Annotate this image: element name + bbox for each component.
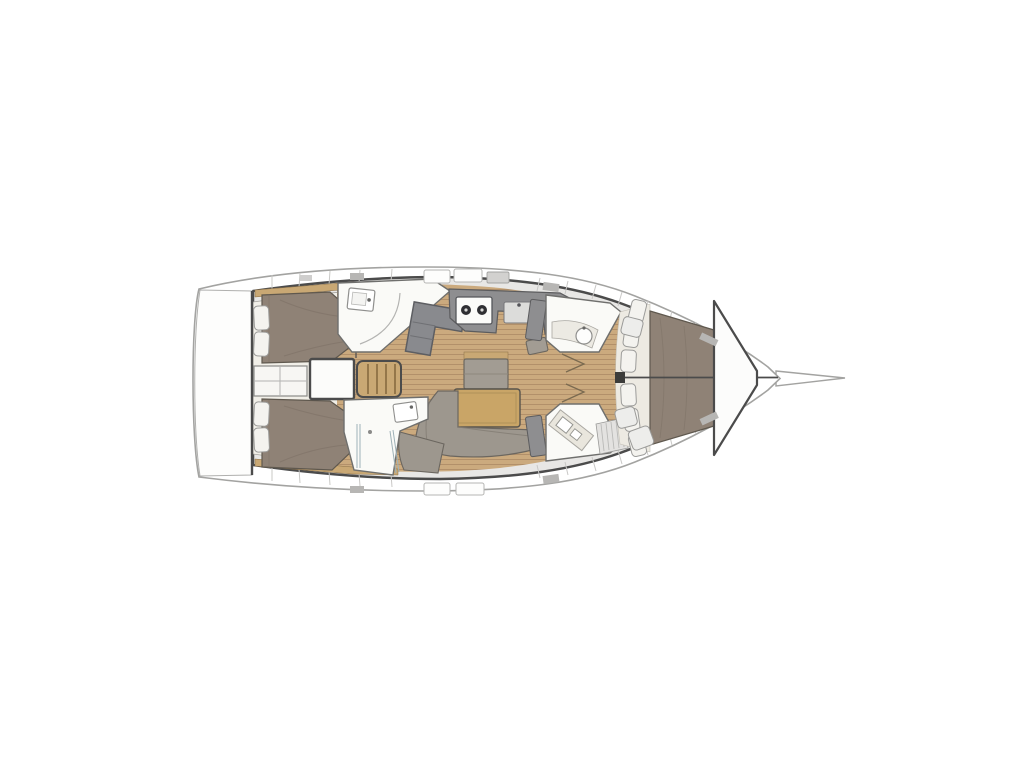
hatch bbox=[487, 272, 509, 283]
hatch bbox=[454, 269, 482, 282]
locker bbox=[614, 406, 638, 429]
hatch bbox=[424, 270, 450, 283]
pillow bbox=[253, 332, 269, 357]
center-shelves bbox=[254, 366, 307, 396]
pillow bbox=[620, 350, 636, 373]
double-bed bbox=[262, 399, 354, 470]
yacht-floorplan-page bbox=[0, 0, 1024, 768]
pillow bbox=[253, 402, 269, 427]
hatch bbox=[456, 483, 484, 495]
hatch bbox=[424, 483, 450, 495]
yacht-floorplan bbox=[0, 0, 1024, 768]
pillow bbox=[253, 306, 269, 331]
sink bbox=[393, 401, 418, 422]
hatch bbox=[300, 275, 312, 281]
companionway-steps bbox=[357, 361, 401, 397]
pillow bbox=[620, 384, 636, 407]
transom-swim-platform bbox=[195, 290, 252, 476]
sink bbox=[347, 288, 375, 312]
engine-compartment bbox=[310, 359, 354, 399]
hatch bbox=[350, 273, 364, 280]
anchor-locker bbox=[714, 301, 757, 455]
salon-center-seat bbox=[464, 352, 508, 389]
mast-post bbox=[615, 372, 625, 383]
hatch bbox=[350, 486, 364, 493]
salon-table bbox=[454, 389, 520, 427]
sink bbox=[576, 328, 592, 344]
stove bbox=[456, 297, 492, 324]
bowsprit bbox=[776, 371, 845, 386]
pillow bbox=[253, 428, 269, 453]
